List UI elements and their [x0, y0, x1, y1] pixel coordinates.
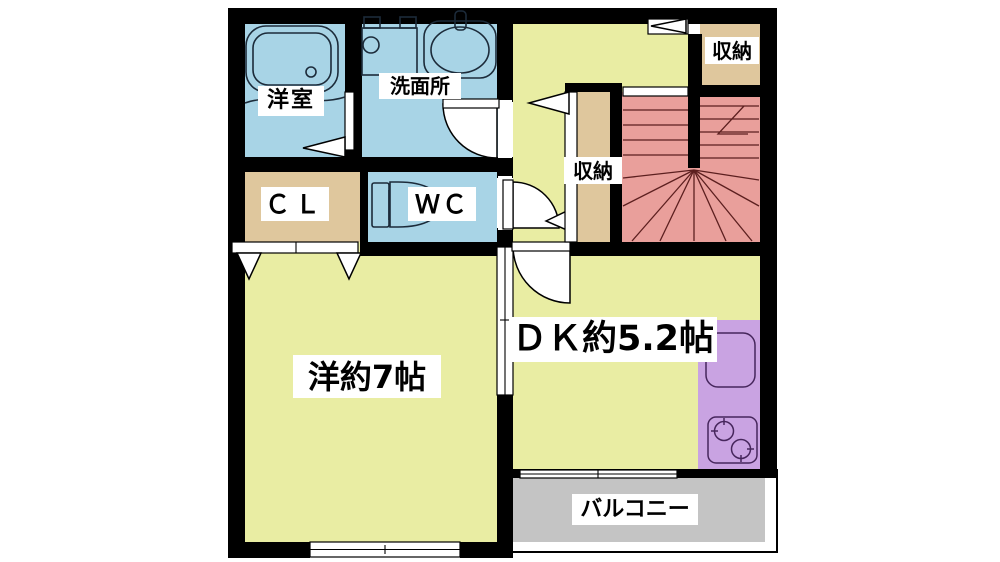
wall-below-wc: [360, 242, 513, 256]
wall-storagetop-bottom: [688, 85, 777, 97]
floorplan-drawing: [0, 0, 1000, 562]
wall-kitchen-bottom: [698, 470, 760, 478]
wall-storage-top-edge: [565, 83, 622, 92]
wall-cl-wc: [360, 172, 368, 242]
bathroom-label: 洋室: [258, 86, 324, 116]
toilet-label: ＷＣ: [408, 187, 476, 221]
wall-top: [228, 8, 777, 24]
wall-bottom-right: [460, 542, 513, 558]
storage-top-label: 収納: [705, 37, 759, 64]
washroom-label: 洗面所: [379, 73, 461, 99]
closet-label: ＣＬ: [261, 187, 329, 221]
wall-west-dk: [497, 395, 513, 543]
stair-entry: [623, 87, 688, 96]
wall-stairs-bottom: [570, 242, 760, 256]
wall-washroom-hall-mid: [497, 157, 513, 178]
wall-washroom-hall-upper: [497, 24, 513, 102]
window-balcony-slider: [520, 470, 677, 478]
dining-kitchen-label: ＤＫ約5.2帖: [509, 317, 717, 362]
balcony-label: バルコニー: [572, 494, 698, 525]
wall-left: [228, 8, 245, 558]
wall-balcony-right: [677, 470, 698, 478]
wall-hall-lower: [497, 228, 513, 247]
wall-storagetop-left: [688, 34, 702, 85]
floorplan-canvas: 洋室 洗面所 収納 収納 ＣＬ ＷＣ 洋約7帖 ＤＫ約5.2帖 バルコニー: [0, 0, 1000, 562]
wall-balcony-left: [502, 470, 520, 478]
wall-bottom-left: [228, 542, 310, 558]
wall-stairs-divider: [688, 92, 700, 168]
western-room-label: 洋約7帖: [293, 355, 441, 398]
storage-top-door: [648, 19, 688, 34]
storage-hall-label: 収納: [564, 157, 622, 184]
window-bottom: [310, 542, 460, 557]
wall-middle-horizontal: [245, 157, 513, 172]
wall-right: [760, 8, 777, 478]
